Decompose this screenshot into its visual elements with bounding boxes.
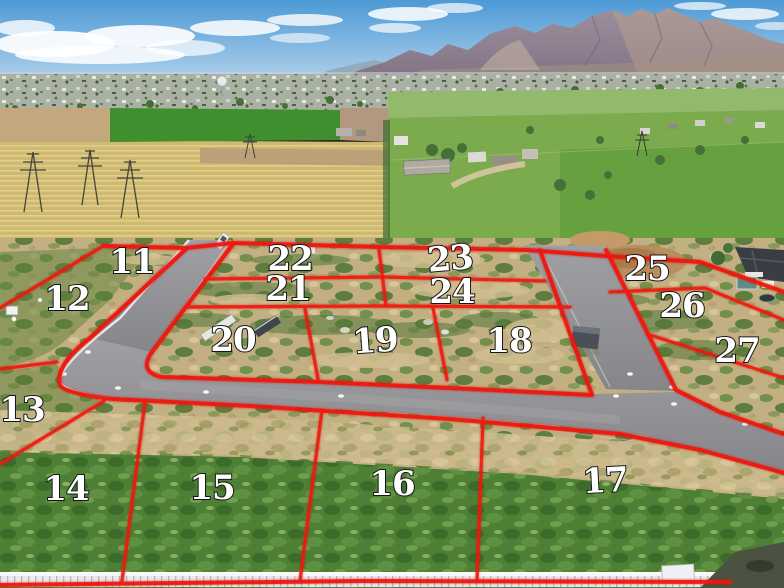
lot-label-14: 14 — [43, 469, 89, 509]
lot-label-18: 18 — [486, 321, 531, 361]
scene: 11 12 13 14 15 16 17 18 19 20 21 22 23 2… — [0, 0, 784, 588]
lot-label-16: 16 — [369, 464, 414, 504]
lot-label-11: 11 — [109, 242, 154, 282]
lot-label-17: 17 — [581, 460, 628, 502]
lot-label-25: 25 — [624, 249, 669, 289]
trampoline — [759, 294, 775, 302]
aerial-lot-map-photo: 11 12 13 14 15 16 17 18 19 20 21 22 23 2… — [0, 0, 784, 588]
lot-label-24: 24 — [429, 272, 475, 312]
fields — [0, 88, 784, 240]
lot-label-13: 13 — [0, 390, 45, 430]
lot-label-19: 19 — [351, 319, 399, 362]
lot-label-27: 27 — [714, 331, 759, 371]
lot-label-22: 22 — [267, 239, 312, 279]
lot-label-26: 26 — [659, 286, 704, 326]
lot-label-15: 15 — [189, 468, 234, 508]
lot-label-20: 20 — [210, 320, 256, 360]
lot-label-12: 12 — [44, 279, 89, 319]
